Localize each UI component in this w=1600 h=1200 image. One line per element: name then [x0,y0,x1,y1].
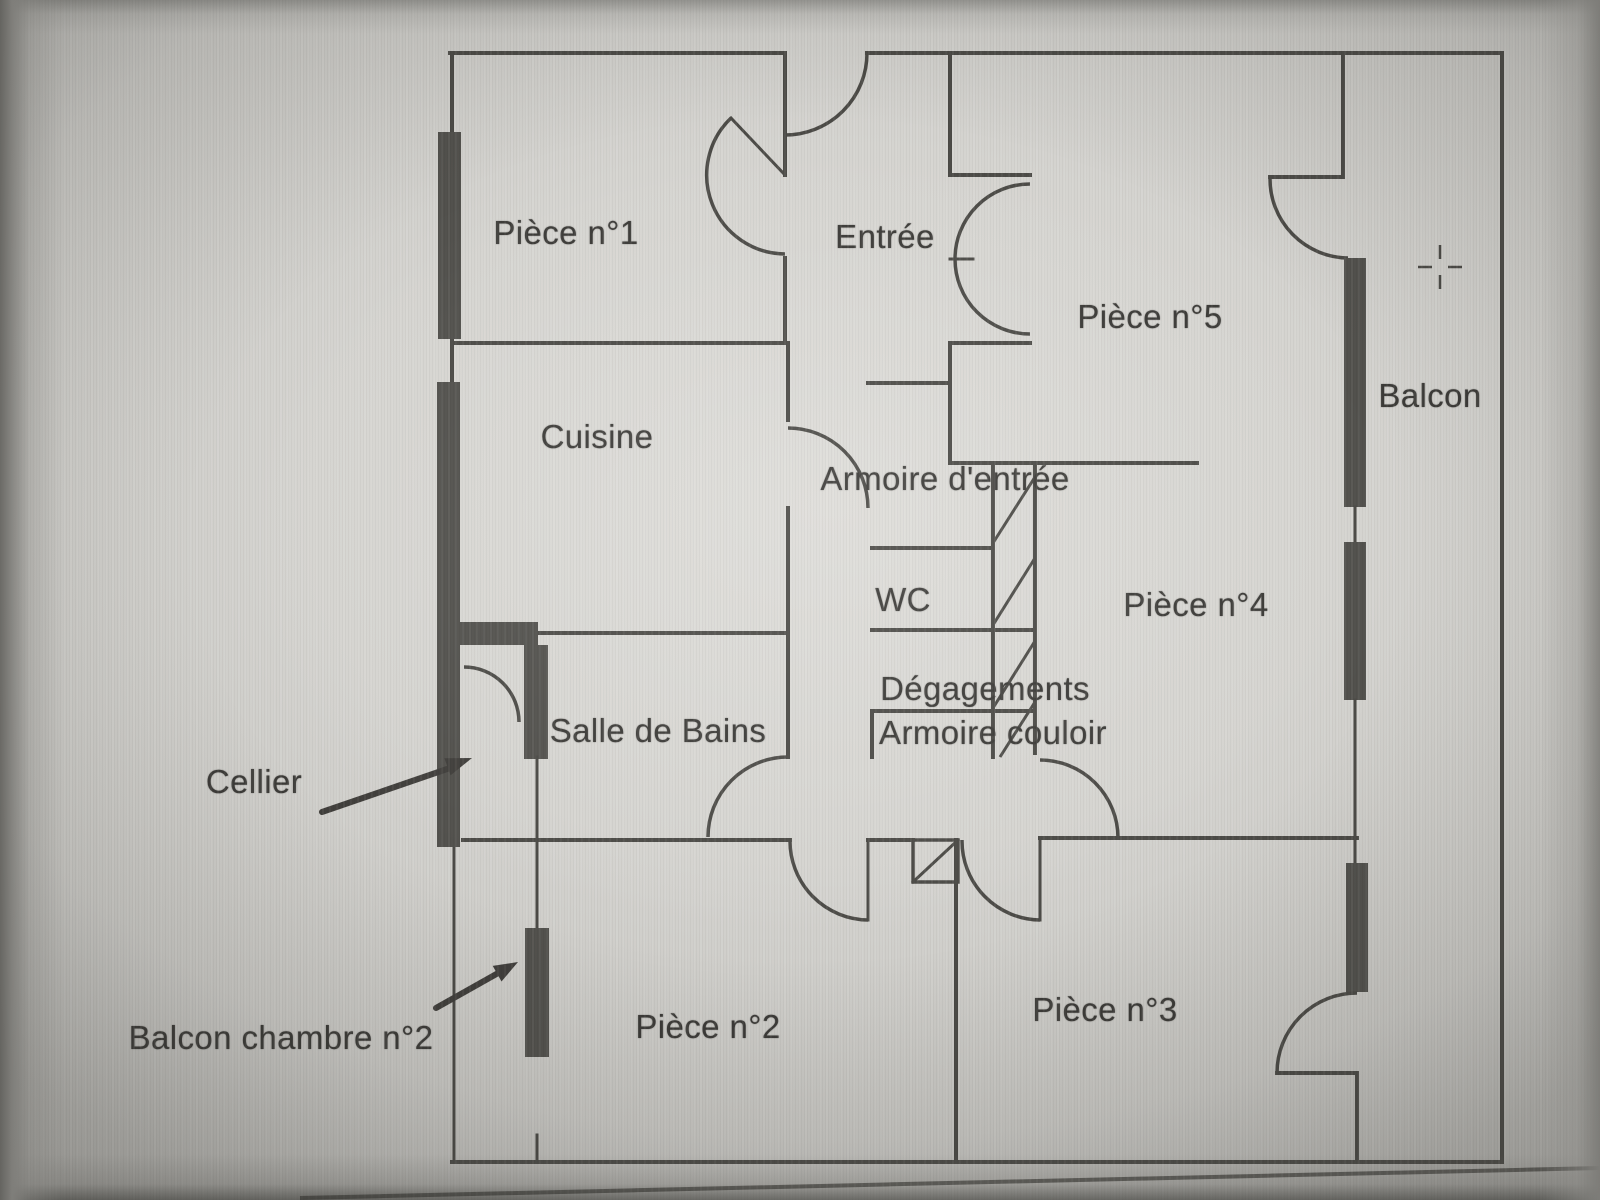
window-bar-piece5 [1344,258,1366,507]
label-piece2: Pièce n°2 [635,1008,780,1046]
label-armoire-entree: Armoire d'entrée [820,460,1069,498]
duct-shaft-diagonal [913,840,958,882]
floor-plan-photo: Pièce n°1 Entrée Pièce n°5 Balcon Cuisin… [0,0,1600,1200]
cellier-arrow [322,768,450,812]
balcony-door-arc-piece3 [1277,993,1357,1073]
cellier-door-arc [464,667,519,722]
piece2-door-arc [790,840,868,920]
piece3-door-arc [962,840,1040,920]
front-door-arc [785,53,867,135]
window-bar-cuisine-left-wall [437,382,460,847]
label-balcon: Balcon [1378,377,1481,415]
window-bar-piece3 [1346,863,1368,992]
window-bar-piece2 [525,928,549,1057]
door-arc-piece1 [707,118,785,254]
label-cuisine: Cuisine [541,418,654,456]
label-piece1: Pièce n°1 [493,214,638,252]
cellier-top-bar [450,622,538,645]
balcony-door-arc-piece5 [1270,178,1348,258]
piece4-door-arc [1040,760,1118,838]
label-piece3: Pièce n°3 [1032,991,1177,1029]
cellier-side-bar [524,645,548,759]
label-piece5: Pièce n°5 [1077,298,1222,336]
label-armoire-couloir: Armoire couloir [879,714,1107,752]
window-bar-piece1 [438,132,461,339]
label-cellier: Cellier [206,763,302,801]
balcon-chambre2-arrow [436,972,500,1008]
label-wc: WC [875,581,931,619]
label-entree: Entrée [835,218,935,256]
label-salle-de-bains: Salle de Bains [550,712,767,750]
label-degagements: Dégagements [880,670,1090,708]
label-piece4: Pièce n°4 [1123,586,1268,624]
bathroom-door-arc [708,757,788,837]
piece3-balcony-door-stub [1277,1073,1357,1162]
door-leaf-piece1 [731,118,785,175]
piece5-right-wall [1270,53,1343,177]
window-bar-piece4-upper [1344,542,1366,700]
crosshair-mark [1418,245,1462,289]
balcon-chambre2-arrowhead [493,962,518,982]
photo-bottom-edge-line [300,1168,1600,1198]
label-balcon-chambre2: Balcon chambre n°2 [129,1019,434,1057]
